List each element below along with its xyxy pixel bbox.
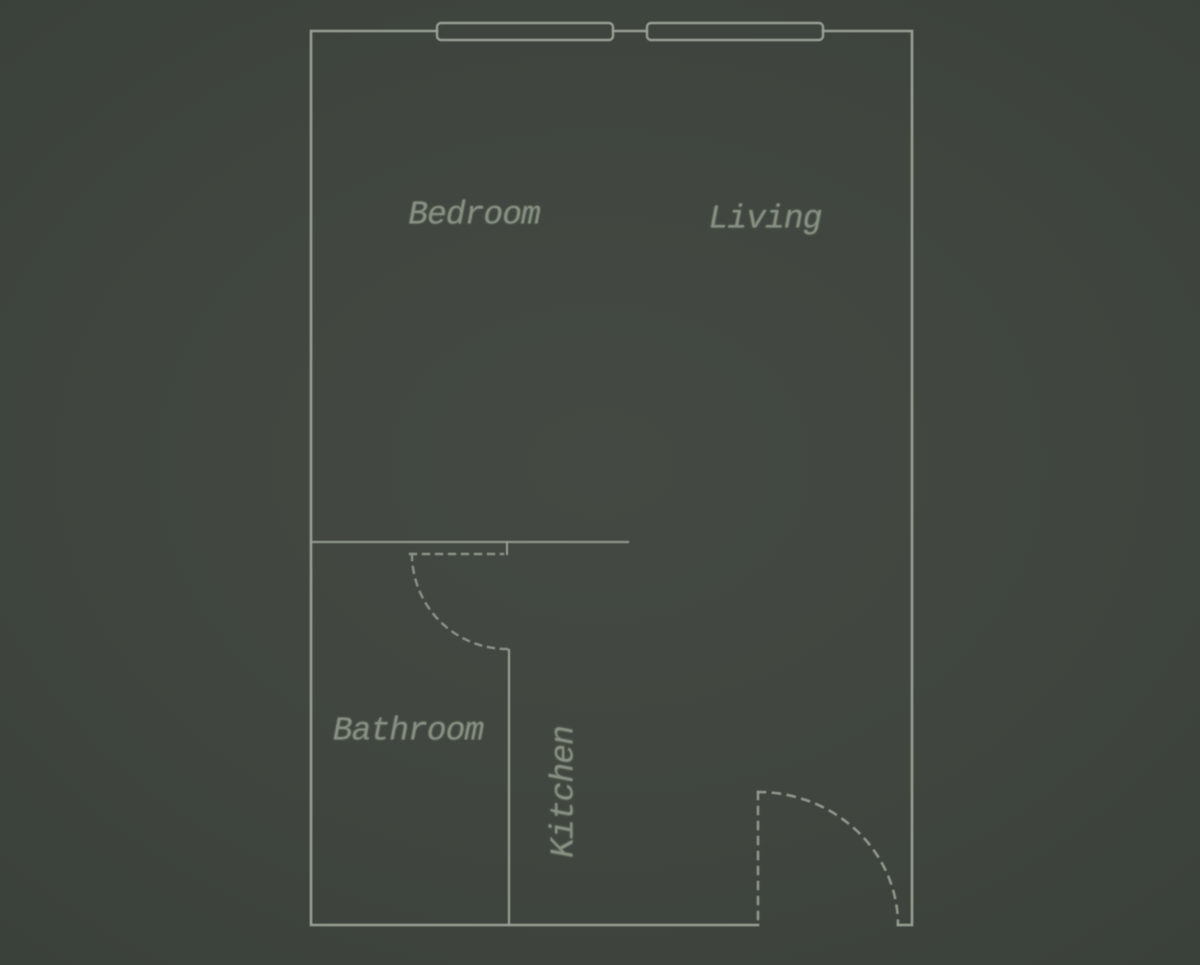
floor-plan-canvas: Bedroom Living Bathroom Kitchen — [0, 0, 1200, 965]
wall-linework — [311, 23, 912, 925]
room-label-bedroom: Bedroom — [408, 197, 540, 234]
entry-door-swing-icon — [758, 792, 898, 925]
bathroom-door-swing-icon — [410, 554, 507, 649]
window-icon-left — [437, 23, 613, 40]
window-icon-right — [647, 23, 823, 40]
exterior-walls — [311, 31, 912, 925]
room-label-living: Living — [709, 201, 822, 238]
room-label-bathroom: Bathroom — [333, 713, 483, 750]
entry-door-arc — [758, 792, 898, 925]
floor-plan-drawing — [0, 0, 1200, 965]
room-label-kitchen: Kitchen — [546, 726, 583, 858]
bathroom-door-arc — [412, 554, 507, 649]
